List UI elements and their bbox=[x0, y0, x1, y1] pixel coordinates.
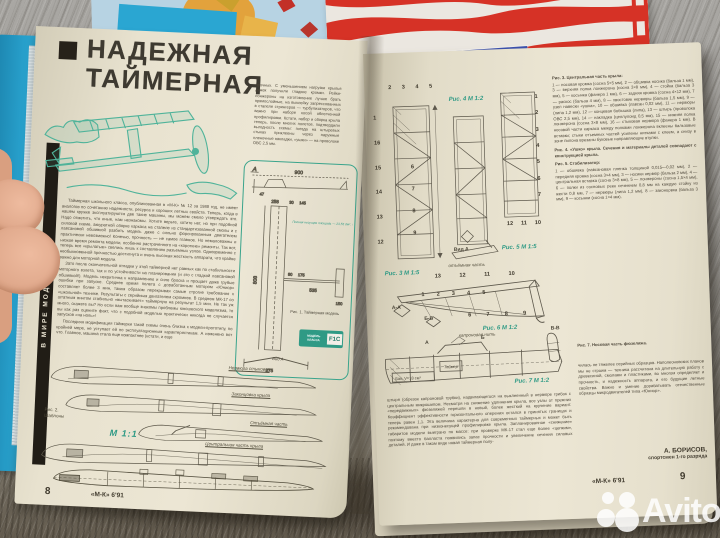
pylon-figure bbox=[385, 271, 563, 335]
left-page: В МИРЕ МОДЕЛЕЙ НАДЕЖНАЯ ТАЙМЕРНАЯ bbox=[14, 26, 367, 519]
callout: 4 bbox=[536, 143, 539, 149]
callout: 12 bbox=[507, 221, 513, 227]
right-page: 2 3 4 5 1 16 15 14 13 12 6 7 8 9 1 2 3 4… bbox=[363, 42, 717, 526]
body-paragraph: Таймерная школьного класса, опубликованн… bbox=[59, 197, 238, 267]
fig1-caption: Рис. 1. Таймерная модель bbox=[290, 309, 339, 316]
callout: 7 bbox=[486, 312, 489, 318]
fig7-scale-label: Рис. 7 М 1:2 bbox=[514, 378, 549, 385]
avito-watermark: Avito bbox=[596, 488, 720, 534]
fig4-view-label: Вид А bbox=[454, 246, 469, 253]
class-badge: МОДЕЛЬ КЛАССА F1C bbox=[299, 329, 344, 348]
headline-square bbox=[59, 41, 78, 60]
page-number-right: 9 bbox=[680, 471, 686, 482]
dim-258: 258 bbox=[271, 199, 279, 204]
section-bb-label: Б-Б bbox=[424, 316, 433, 322]
marker-a: А bbox=[425, 340, 429, 346]
caption-column: Рис. 3. Центральная часть крыла: 1 — нос… bbox=[552, 70, 703, 335]
intro-column: прочных. С уменьшением нагрузки крылья д… bbox=[252, 82, 341, 162]
callout: 3 bbox=[536, 127, 539, 133]
article-headline: НАДЕЖНАЯ ТАЙМЕРНАЯ bbox=[85, 34, 265, 99]
fig4-caption: Рис. 4. «Ушко» крыла. Сечения и материал… bbox=[554, 142, 696, 158]
dim-80: 80 bbox=[288, 272, 293, 277]
callout: 9 bbox=[523, 310, 526, 316]
body-paragraph: Зато после окончательной отладки у этой … bbox=[57, 261, 235, 326]
callout: 4 bbox=[467, 290, 470, 296]
fig4-sub-label: отъёмная часть bbox=[448, 262, 485, 268]
section-aa-label: А-А bbox=[392, 305, 401, 311]
badge-class-code: F1C bbox=[327, 334, 342, 346]
author-block: А. БОРИСОВ, спортсмен 1-го разряда bbox=[563, 446, 707, 464]
dim-30: 30 bbox=[289, 200, 294, 205]
issue-label-right: «М-К» 6'91 bbox=[592, 477, 625, 485]
wing-frame-figures bbox=[376, 88, 554, 270]
badge-line2: КЛАССА bbox=[300, 338, 327, 343]
issue-label-left: «М-К» 6'91 bbox=[91, 491, 124, 499]
fig5-scale-label: Рис. 5 М 1:5 bbox=[502, 244, 537, 251]
callout: 5 bbox=[482, 290, 485, 296]
callout: 12 bbox=[459, 273, 465, 279]
callout: 6 bbox=[411, 164, 414, 170]
page-number-left: 8 bbox=[45, 486, 51, 497]
callout: 2 bbox=[535, 110, 538, 116]
fig5-caption-body: 1 — обшивка (лавсановая пленка толщиной … bbox=[555, 163, 698, 202]
fig2-scale: М 1:1 bbox=[109, 428, 137, 439]
figure1-box: А 900 47 808 258 30 145 bbox=[234, 160, 358, 381]
timer-label: Таймер bbox=[444, 364, 459, 370]
dim-47: 47 bbox=[260, 191, 265, 196]
fig2-label-line2: Шаблоны bbox=[44, 413, 64, 420]
callout: 9 bbox=[413, 230, 416, 236]
callout: 2 bbox=[388, 85, 391, 91]
callout: 8 bbox=[412, 208, 415, 214]
callout: 13 bbox=[435, 273, 441, 279]
dim-150: 150 bbox=[336, 301, 344, 306]
photo-scene: ЛИЧНОЕ ОРУЖИЕ В МИРЕ МОДЕЛЕЙ НАДЕЖНАЯ ТА… bbox=[0, 0, 720, 538]
fuselage-side-figure: Таймер Бак, V=18 см³ А Б bbox=[381, 331, 575, 394]
callout-row: 2 3 4 5 bbox=[388, 84, 432, 92]
callout: 5 bbox=[537, 159, 540, 165]
callout: 11 bbox=[484, 272, 490, 278]
fig3-caption-body: 1 — носовая кромка (сосна 5×5 мм), 2 — о… bbox=[552, 77, 696, 144]
callout: 7 bbox=[412, 186, 415, 192]
tank-label: Бак, V=18 см³ bbox=[395, 375, 421, 381]
watermark-text: Avito bbox=[642, 492, 720, 531]
avito-logo-icon bbox=[596, 488, 640, 534]
dim-145: 145 bbox=[299, 200, 307, 205]
callout: 7 bbox=[538, 192, 541, 198]
dim-900: 900 bbox=[294, 170, 303, 176]
callout-row: 12 11 10 bbox=[507, 220, 541, 227]
callout: 3 bbox=[402, 85, 405, 91]
callout: 10 bbox=[509, 271, 515, 277]
bottom-paragraph: штыря (обрезок капроновой трубки), надви… bbox=[387, 391, 574, 481]
badge-text: МОДЕЛЬ КЛАССА bbox=[300, 334, 327, 342]
fig1-annotation: Полная несущая площадь — 23,55 дм². Проф… bbox=[292, 220, 355, 234]
dim-808: 808 bbox=[253, 276, 259, 285]
fig7-caption: Рис. 7. Носовая часть фюзеляжа. bbox=[577, 338, 703, 348]
fig4-scale-label: Рис. 4 М 1:2 bbox=[449, 96, 484, 103]
callout: 2 bbox=[437, 291, 440, 297]
callout: 1 bbox=[535, 94, 538, 100]
callout: 11 bbox=[521, 220, 527, 226]
plane-illustration bbox=[36, 90, 253, 212]
callout: 5 bbox=[429, 84, 432, 90]
callout: 6 bbox=[468, 312, 471, 318]
fig2-label: Рис. 2. Шаблоны bbox=[44, 407, 64, 420]
callout: 10 bbox=[535, 220, 541, 226]
callout: 3 bbox=[452, 291, 455, 297]
dim-175: 175 bbox=[298, 272, 306, 277]
section-vv-label: В-В bbox=[551, 325, 560, 331]
body-column: Таймерная школьного класса, опубликованн… bbox=[54, 197, 238, 377]
callout: 4 bbox=[415, 84, 418, 90]
dim-535: 535 bbox=[309, 288, 317, 293]
callout: 6 bbox=[537, 176, 540, 182]
bottom-right-column: чилась не тяжелее серийных образцов. Нап… bbox=[578, 358, 707, 446]
fig1-view-label: Вид А bbox=[272, 356, 284, 362]
callout: 8 bbox=[505, 311, 508, 317]
callout: 1 bbox=[421, 292, 424, 298]
